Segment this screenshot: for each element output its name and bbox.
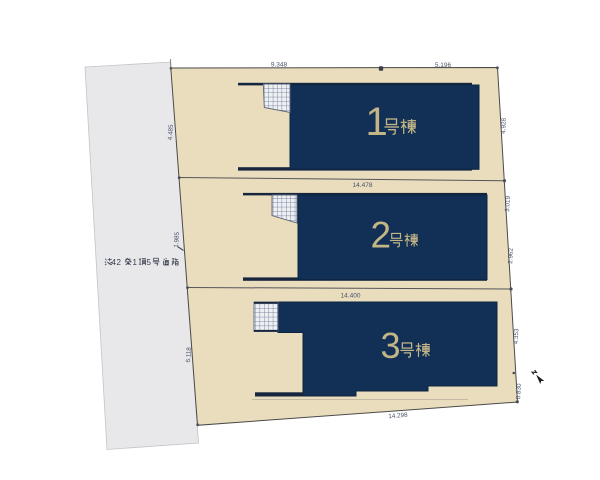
svg-text:4.353: 4.353 xyxy=(513,328,521,345)
svg-text:1: 1 xyxy=(133,258,138,267)
svg-text:2: 2 xyxy=(371,215,392,256)
svg-text:14.298: 14.298 xyxy=(388,412,408,420)
svg-text:1.985: 1.985 xyxy=(173,231,181,248)
svg-text:2: 2 xyxy=(117,258,122,267)
svg-text:4.485: 4.485 xyxy=(167,124,175,141)
svg-text:5: 5 xyxy=(147,258,152,267)
svg-text:3.019: 3.019 xyxy=(504,195,512,212)
svg-text:9.348: 9.348 xyxy=(271,62,288,69)
svg-text:1: 1 xyxy=(366,100,388,144)
svg-text:4.928: 4.928 xyxy=(500,117,508,134)
svg-text:2.962: 2.962 xyxy=(507,247,515,264)
svg-text:6.118: 6.118 xyxy=(185,347,193,363)
svg-text:14.478: 14.478 xyxy=(353,182,373,189)
svg-text:5.196: 5.196 xyxy=(435,62,452,69)
svg-text:14.400: 14.400 xyxy=(341,293,361,300)
svg-text:0.830: 0.830 xyxy=(515,383,523,400)
svg-text:3: 3 xyxy=(381,325,401,366)
